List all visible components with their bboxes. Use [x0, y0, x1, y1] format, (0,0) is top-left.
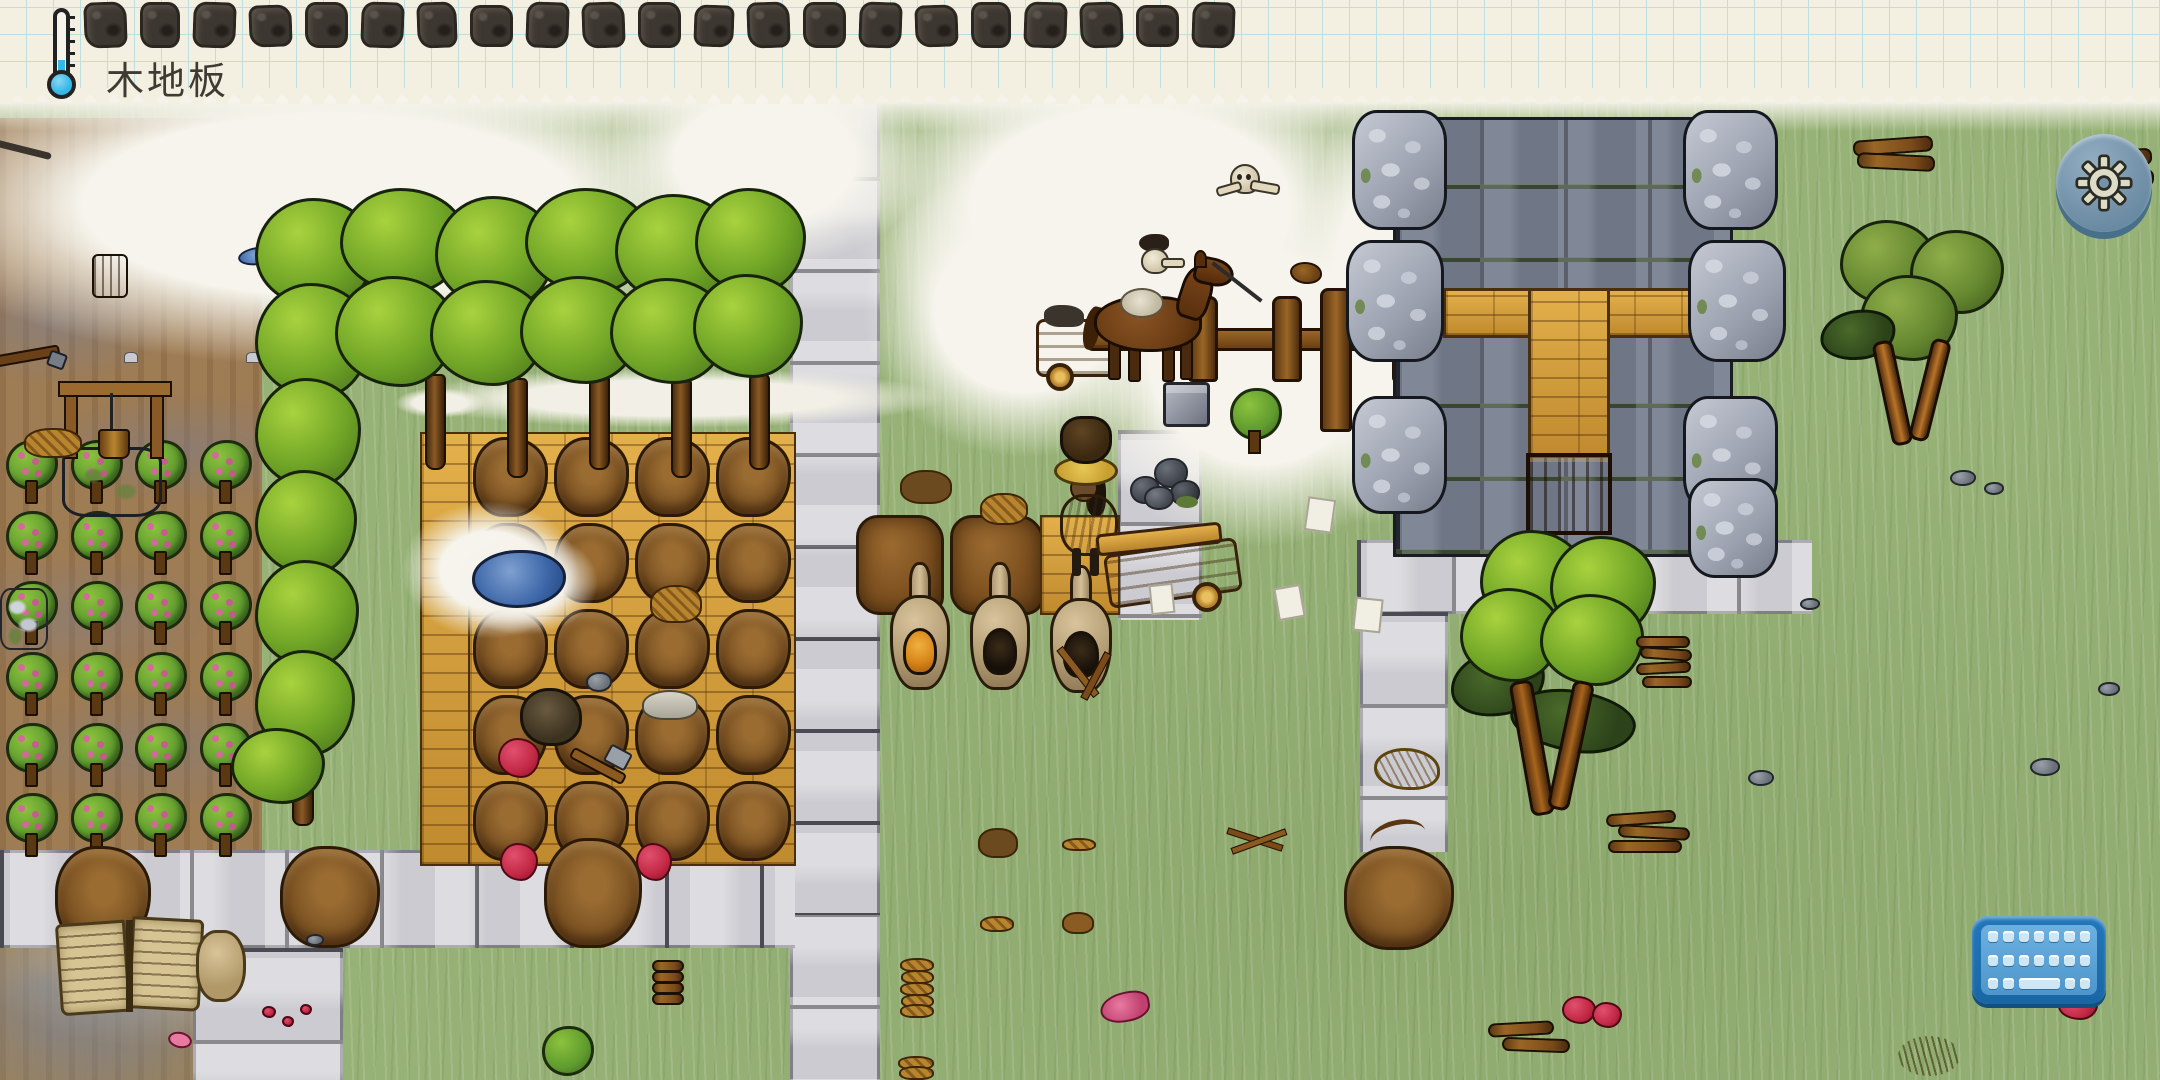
- red-cloth[interactable]: [1592, 1002, 1622, 1028]
- small-stone[interactable]: [2098, 682, 2120, 696]
- keyboard-key: [2034, 931, 2044, 942]
- bush-berries: [147, 735, 154, 742]
- bush-berries: [83, 805, 90, 812]
- firewood-pile[interactable]: [1636, 636, 1696, 708]
- bush-stem: [25, 833, 38, 857]
- bush-berries: [147, 664, 154, 671]
- bush-crown: [542, 1026, 594, 1076]
- cobble-bastion[interactable]: [1352, 396, 1447, 514]
- berry-bush[interactable]: [4, 511, 56, 575]
- bush-stem: [90, 692, 103, 716]
- adobe-kiln[interactable]: [970, 562, 1030, 690]
- sketch-item-icon[interactable]: [1136, 5, 1179, 47]
- bear-pelt[interactable]: [280, 846, 380, 948]
- keyboard-key: [2019, 931, 2029, 942]
- cobble-bastion[interactable]: [1688, 240, 1786, 362]
- cart-wheel: [1192, 582, 1222, 612]
- paper-sheet[interactable]: [1148, 583, 1175, 615]
- bush-stem: [219, 692, 232, 716]
- red-item[interactable]: [500, 843, 538, 881]
- small-stone[interactable]: [1748, 770, 1774, 786]
- sketch-item-icon[interactable]: [693, 4, 734, 47]
- moss: [1176, 496, 1198, 508]
- sketch-item-icon[interactable]: [248, 4, 292, 47]
- keyboard-key: [2065, 978, 2075, 989]
- keyboard-key: [2019, 955, 2029, 966]
- bush-stem: [25, 551, 38, 575]
- bush-stem: [90, 763, 103, 787]
- keyboard-key: [2064, 931, 2074, 942]
- red-berry[interactable]: [262, 1006, 276, 1018]
- bush-stem: [90, 551, 103, 575]
- sketch-item-icon[interactable]: [803, 2, 846, 48]
- sketch-item-icon[interactable]: [971, 2, 1011, 48]
- berry-bush[interactable]: [198, 511, 250, 575]
- thermometer-ticks: [66, 16, 75, 72]
- kiln-body: [890, 595, 950, 690]
- keyboard-row: [1988, 955, 2090, 966]
- berry-bush[interactable]: [198, 581, 250, 645]
- sketch-item-icon[interactable]: [525, 1, 570, 48]
- sketch-item-icon[interactable]: [470, 5, 513, 47]
- berry-bush[interactable]: [198, 652, 250, 716]
- berry-bush[interactable]: [198, 440, 250, 504]
- keyboard-row: [1988, 931, 2090, 942]
- bush-berries: [18, 664, 25, 671]
- tree-canopy: [1540, 594, 1644, 686]
- sketch-item-icon[interactable]: [360, 1, 405, 48]
- keyboard-row: [1988, 978, 2090, 989]
- bush-berries: [83, 523, 90, 530]
- thermometer-icon: [40, 8, 84, 106]
- log-pile[interactable]: [1488, 1022, 1574, 1070]
- wooden-door[interactable]: [1526, 453, 1612, 535]
- horse-ear: [1194, 250, 1207, 268]
- bush-berries: [212, 805, 219, 812]
- well-rope: [110, 393, 113, 431]
- straw-pile[interactable]: [1374, 748, 1440, 790]
- log-pile[interactable]: [1853, 138, 1937, 178]
- paper-sheet[interactable]: [1304, 496, 1336, 534]
- basket[interactable]: [980, 493, 1028, 525]
- bush-stem: [154, 551, 167, 575]
- bush-stem: [25, 480, 38, 504]
- berry-bush[interactable]: [133, 581, 185, 645]
- fence-post[interactable]: [1272, 296, 1302, 382]
- skull-eye: [1237, 174, 1242, 180]
- bone: [1161, 258, 1185, 268]
- sketch-item-icon[interactable]: [746, 1, 791, 48]
- bush-berries: [83, 735, 90, 742]
- small-stone[interactable]: [1950, 470, 1976, 486]
- keyboard-key: [1988, 978, 1998, 989]
- bush-stem: [90, 621, 103, 645]
- keyboard-key: [2080, 955, 2090, 966]
- tree-trunk[interactable]: [507, 378, 528, 478]
- keyboard-button[interactable]: [1972, 916, 2106, 1004]
- bush-stem: [25, 763, 38, 787]
- bush-berries: [147, 523, 154, 530]
- round-stone[interactable]: [586, 672, 612, 692]
- bush-berries: [212, 664, 219, 671]
- tree-trunk[interactable]: [749, 374, 770, 470]
- book-page-right: [128, 916, 205, 1012]
- keyboard-key: [1988, 931, 1998, 942]
- coil-stack[interactable]: [652, 960, 686, 1006]
- tree-canopy[interactable]: [693, 274, 803, 378]
- book-spine: [126, 920, 133, 1012]
- red-item[interactable]: [498, 738, 540, 778]
- firewood-pile[interactable]: [1606, 812, 1696, 868]
- fortress-floor-column[interactable]: [1528, 288, 1610, 458]
- small-stone[interactable]: [1800, 598, 1820, 610]
- bush-berries: [212, 523, 219, 530]
- cobble-bastion[interactable]: [1683, 110, 1778, 230]
- berry-bush[interactable]: [69, 511, 121, 575]
- bear-pelt[interactable]: [1344, 846, 1454, 950]
- sketch-item-icon[interactable]: [1079, 1, 1124, 48]
- shrub[interactable]: [540, 1026, 592, 1080]
- red-berry[interactable]: [282, 1016, 294, 1027]
- well-bucket: [98, 429, 130, 459]
- bowl[interactable]: [1062, 912, 1094, 934]
- keyboard-key: [2003, 931, 2013, 942]
- stone-wall-chunk[interactable]: [0, 588, 48, 650]
- bush-stem: [219, 551, 232, 575]
- barrel[interactable]: [92, 254, 128, 298]
- berry-basket[interactable]: [650, 585, 702, 623]
- bush-stem: [154, 763, 167, 787]
- plate[interactable]: [1062, 838, 1096, 851]
- bone: [1215, 181, 1243, 198]
- dry-shrub[interactable]: [1898, 1036, 1960, 1076]
- bush-berries: [83, 593, 90, 600]
- white-bird[interactable]: [124, 352, 138, 363]
- red-cloth[interactable]: [1562, 996, 1596, 1024]
- keyboard-key: [2003, 978, 2013, 989]
- small-stone[interactable]: [2030, 758, 2060, 776]
- kiln-fire-mouth: [903, 628, 938, 674]
- open-book[interactable]: [58, 918, 206, 1018]
- keyboard-key: [2049, 955, 2059, 966]
- berry-bush[interactable]: [133, 511, 185, 575]
- keyboard-key: [2080, 931, 2090, 942]
- sketch-item-icon[interactable]: [140, 2, 180, 48]
- red-berry[interactable]: [300, 1004, 312, 1015]
- dark-pot[interactable]: [1060, 416, 1112, 464]
- keyboard-spacebar: [2019, 978, 2060, 989]
- berry-bush[interactable]: [4, 793, 56, 857]
- cobble-bastion[interactable]: [1352, 110, 1447, 230]
- stone-road-vertical[interactable]: [1360, 612, 1448, 852]
- hotbar: [84, 2, 1235, 48]
- olive-tree[interactable]: [1820, 220, 2020, 460]
- paper-sheet[interactable]: [1352, 597, 1383, 634]
- berry-bush[interactable]: [198, 793, 250, 857]
- red-item[interactable]: [636, 843, 672, 881]
- berry-bush[interactable]: [4, 723, 56, 787]
- berry-bush[interactable]: [133, 652, 185, 716]
- bush-stem: [219, 621, 232, 645]
- fire-pit[interactable]: [520, 688, 582, 746]
- cart-contents: [1044, 305, 1084, 327]
- shrub[interactable]: [1228, 388, 1280, 452]
- sketch-item-icon[interactable]: [581, 1, 626, 48]
- paper-torn-edge: [0, 88, 2160, 104]
- basket[interactable]: [24, 428, 82, 458]
- dark-basket[interactable]: [900, 470, 952, 504]
- bone: [1249, 179, 1280, 195]
- plate-stack[interactable]: [900, 958, 936, 1016]
- paper-sheet[interactable]: [1273, 584, 1305, 621]
- bush-stem: [25, 692, 38, 716]
- sketch-item-icon[interactable]: [858, 1, 903, 48]
- skeleton[interactable]: [1220, 164, 1278, 204]
- tree-trunk[interactable]: [425, 374, 446, 470]
- bush-stem: [154, 692, 167, 716]
- tree-canopy[interactable]: [231, 728, 325, 804]
- firing-kiln[interactable]: [890, 562, 950, 690]
- bush-stem: [154, 621, 167, 645]
- stump[interactable]: [196, 930, 246, 1002]
- bush-stem: [219, 763, 232, 787]
- leg: [1072, 548, 1081, 576]
- berry-bush[interactable]: [69, 652, 121, 716]
- cart-wheel: [1046, 363, 1074, 391]
- bush-stem: [219, 480, 232, 504]
- kiln-mouth: [983, 628, 1018, 674]
- hover-caption: 木地板: [106, 50, 229, 105]
- thermometer-bulb: [47, 70, 76, 99]
- sketch-item-icon[interactable]: [83, 1, 128, 48]
- dirt-clod[interactable]: [1290, 262, 1322, 284]
- bush-stem: [219, 833, 232, 857]
- keyboard-key: [2003, 955, 2013, 966]
- bush-berries: [18, 452, 25, 459]
- small-stone[interactable]: [306, 934, 324, 946]
- sketch-item-icon[interactable]: [416, 1, 458, 48]
- bush-berries: [18, 523, 25, 530]
- plate-stack[interactable]: [898, 1056, 936, 1080]
- keyboard-key: [1988, 955, 1998, 966]
- stone-pile[interactable]: [1124, 452, 1206, 514]
- bush-berries: [212, 593, 219, 600]
- book-page-left: [55, 920, 131, 1017]
- keyboard-key: [2064, 955, 2074, 966]
- keyboard-key: [2080, 978, 2090, 989]
- kiln-body: [970, 595, 1030, 690]
- berry-bush[interactable]: [133, 723, 185, 787]
- berry-bush[interactable]: [133, 793, 185, 857]
- bush-stem: [1248, 430, 1261, 454]
- berry-bush[interactable]: [69, 723, 121, 787]
- bush-berries: [18, 735, 25, 742]
- stone-block[interactable]: [1163, 382, 1210, 427]
- flat-stones[interactable]: [642, 690, 698, 720]
- tree-trunk[interactable]: [671, 378, 692, 478]
- bush-berries: [83, 664, 90, 671]
- bush-berries: [212, 452, 219, 459]
- sketch-item-icon[interactable]: [638, 2, 681, 48]
- dark-basket[interactable]: [978, 828, 1018, 858]
- berry-bush[interactable]: [4, 652, 56, 716]
- bear-pelt[interactable]: [544, 838, 642, 948]
- sketch-item-icon[interactable]: [192, 1, 237, 48]
- sketch-item-icon[interactable]: [1191, 1, 1236, 48]
- saddle-blanket: [1120, 288, 1164, 318]
- settings-button[interactable]: [2056, 134, 2152, 232]
- cobble-bastion[interactable]: [1346, 240, 1444, 362]
- skull-eye: [1246, 174, 1251, 180]
- sketch-item-icon[interactable]: [305, 2, 348, 48]
- keyboard-key: [2049, 931, 2059, 942]
- keyboard-key: [2034, 955, 2044, 966]
- horse-skull[interactable]: [1135, 246, 1185, 282]
- keyboard-icon: [1981, 925, 2097, 995]
- small-stone[interactable]: [1984, 482, 2004, 495]
- berry-bush[interactable]: [69, 581, 121, 645]
- bush-stem: [154, 833, 167, 857]
- gear-icon: [2075, 154, 2133, 212]
- sketch-item-icon[interactable]: [914, 4, 958, 47]
- game-screen: 木地板: [0, 0, 2160, 1080]
- tree-trunk[interactable]: [589, 374, 610, 470]
- sketch-item-icon[interactable]: [1023, 1, 1068, 48]
- plate[interactable]: [980, 916, 1014, 932]
- well-crossbar: [58, 381, 172, 397]
- bush-berries: [212, 735, 219, 742]
